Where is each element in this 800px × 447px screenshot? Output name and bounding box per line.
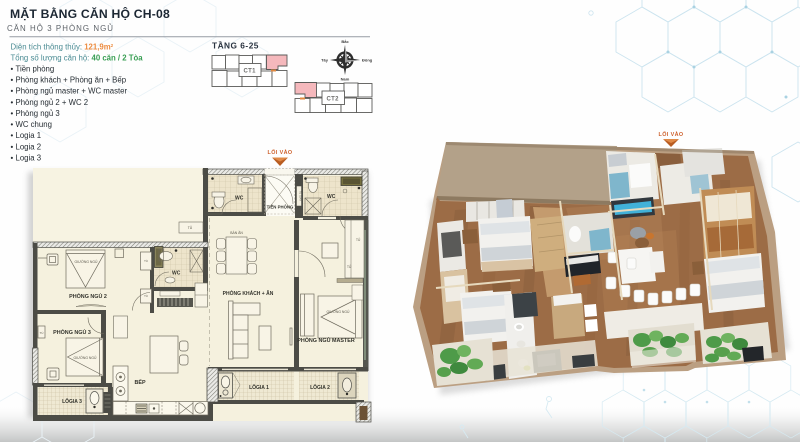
- svg-text:LÔGIA 1: LÔGIA 1: [249, 383, 269, 391]
- svg-text:Tiền phòng: Tiền phòng: [16, 64, 55, 73]
- svg-text:Phòng khách + Phòng ăn + Bếp: Phòng khách + Phòng ăn + Bếp: [16, 76, 127, 85]
- svg-text:WC: WC: [327, 194, 336, 200]
- svg-text:LỐI VÀO: LỐI VÀO: [659, 131, 684, 138]
- svg-text:TỦ: TỦ: [188, 225, 193, 230]
- svg-text:PHÒNG NGỦ MASTER: PHÒNG NGỦ MASTER: [297, 336, 355, 344]
- svg-text:BẾP: BẾP: [134, 379, 145, 386]
- svg-text:Phòng ngủ 2 + WC 2: Phòng ngủ 2 + WC 2: [16, 98, 89, 107]
- svg-text:•: •: [11, 76, 14, 85]
- svg-text:CT1: CT1: [244, 69, 257, 75]
- svg-text:•: •: [11, 120, 14, 129]
- svg-text:Tổng số lượng căn hộ: 40 căn /: Tổng số lượng căn hộ: 40 căn / 2 Tòa: [11, 54, 144, 63]
- svg-text:Bắc: Bắc: [341, 39, 349, 44]
- svg-text:Nam: Nam: [341, 77, 350, 82]
- svg-text:•: •: [11, 64, 14, 73]
- svg-text:CT2: CT2: [327, 97, 340, 103]
- svg-text:GIƯỜNG NGỦ: GIƯỜNG NGỦ: [75, 259, 98, 264]
- svg-text:•: •: [11, 98, 14, 107]
- svg-text:WC: WC: [172, 271, 181, 277]
- svg-text:Đông: Đông: [362, 58, 373, 63]
- svg-text:Logia 1: Logia 1: [16, 131, 42, 140]
- svg-text:TỦ: TỦ: [40, 330, 44, 335]
- svg-text:PHÒNG NGỦ 3: PHÒNG NGỦ 3: [53, 328, 91, 336]
- svg-text:Diện tích thông thủy: 121,9m2: Diện tích thông thủy: 121,9m2: [11, 43, 114, 52]
- svg-text:•: •: [11, 131, 14, 140]
- svg-text:•: •: [11, 87, 14, 96]
- svg-text:Logia 2: Logia 2: [16, 142, 42, 151]
- svg-text:TẦNG 6-25: TẦNG 6-25: [212, 40, 259, 50]
- svg-text:Phòng ngủ 3: Phòng ngủ 3: [16, 109, 60, 118]
- svg-text:GIƯỜNG NGỦ: GIƯỜNG NGỦ: [74, 355, 97, 360]
- svg-text:Logia 3: Logia 3: [16, 154, 42, 163]
- svg-text:LÔGIA 3: LÔGIA 3: [62, 397, 82, 405]
- svg-text:•: •: [11, 154, 14, 163]
- svg-text:•: •: [11, 142, 14, 151]
- svg-text:TỦ: TỦ: [144, 293, 148, 298]
- svg-text:Tây: Tây: [321, 58, 329, 63]
- svg-text:TỦ: TỦ: [356, 237, 361, 242]
- svg-text:TIỀN PHÒNG: TIỀN PHÒNG: [267, 205, 294, 210]
- svg-text:PHÒNG NGỦ 2: PHÒNG NGỦ 2: [69, 292, 107, 300]
- svg-text:GIƯỜNG NGỦ: GIƯỜNG NGỦ: [327, 309, 350, 314]
- svg-text:Phòng ngủ master + WC master: Phòng ngủ master + WC master: [16, 87, 128, 96]
- svg-text:LỐI VÀO: LỐI VÀO: [268, 149, 293, 156]
- svg-text:TỦ: TỦ: [144, 258, 148, 263]
- svg-text:TỦ: TỦ: [347, 264, 352, 269]
- svg-text:MẶT BẰNG CĂN HỘ CH-08: MẶT BẰNG CĂN HỘ CH-08: [10, 6, 170, 21]
- svg-text:PHÒNG KHÁCH + ĂN: PHÒNG KHÁCH + ĂN: [223, 289, 274, 297]
- svg-text:WC chung: WC chung: [16, 120, 52, 129]
- svg-text:CĂN HỘ 3 PHÒNG NGỦ: CĂN HỘ 3 PHÒNG NGỦ: [7, 24, 114, 33]
- svg-text:BÀN ĂN: BÀN ĂN: [230, 231, 243, 235]
- svg-text:WC: WC: [235, 196, 244, 202]
- svg-text:LÔGIA 2: LÔGIA 2: [310, 383, 330, 391]
- svg-text:•: •: [11, 109, 14, 118]
